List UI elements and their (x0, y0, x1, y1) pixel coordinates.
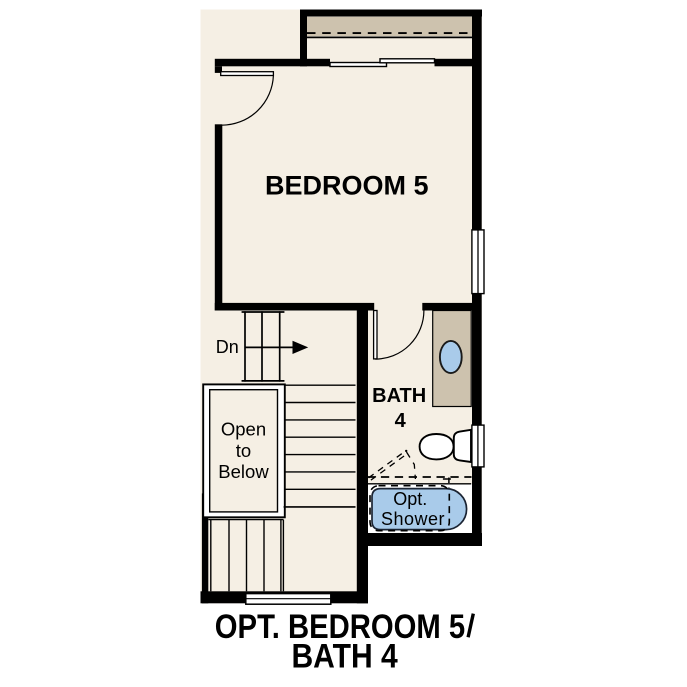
svg-text:4: 4 (395, 410, 407, 432)
svg-text:Shower: Shower (381, 509, 445, 529)
svg-text:Dn: Dn (216, 337, 239, 357)
svg-text:BATH 4: BATH 4 (291, 638, 397, 676)
svg-text:BEDROOM 5: BEDROOM 5 (265, 171, 429, 201)
svg-text:Open: Open (221, 418, 266, 439)
svg-text:Opt.: Opt. (393, 489, 427, 509)
svg-text:to: to (236, 440, 251, 461)
svg-text:BATH: BATH (372, 385, 426, 407)
svg-text:Below: Below (218, 461, 269, 482)
